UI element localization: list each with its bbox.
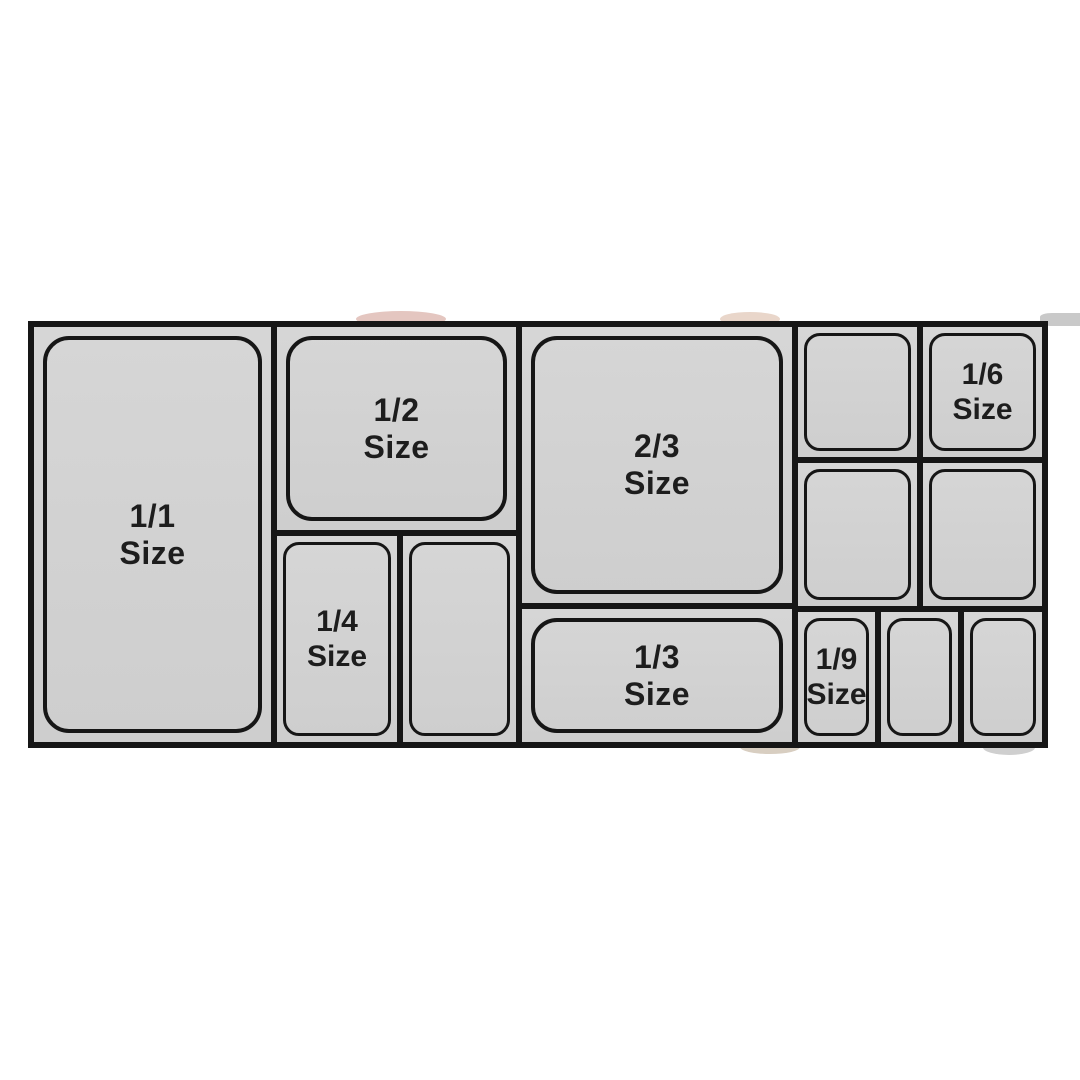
- pan-1-6: 1/6 Size: [923, 327, 1042, 457]
- pan-label: 1/4 Size: [277, 536, 397, 742]
- pan-size-chart: 1/1 Size 1/2 Size 1/4 Size: [0, 0, 1080, 1080]
- pan-label: 1/1 Size: [34, 327, 271, 742]
- pan-label-word: Size: [806, 677, 866, 712]
- row-sixth-pans-top: 1/6 Size: [798, 327, 1042, 457]
- pan-1-9-unlabeled-1: [881, 612, 958, 742]
- column-twothirds-third: 2/3 Size 1/3 Size: [522, 327, 792, 742]
- pan-label-word: Size: [624, 676, 690, 713]
- pan-1-9-unlabeled-2: [964, 612, 1042, 742]
- pan-label-word: Size: [363, 429, 429, 466]
- row-quarter-pans: 1/4 Size: [277, 536, 516, 742]
- pan-inner-outline: [970, 618, 1036, 736]
- pan-1-1: 1/1 Size: [34, 327, 271, 742]
- pan-label-fraction: 1/2: [374, 392, 420, 429]
- pan-2-3: 2/3 Size: [522, 327, 792, 603]
- pan-label: 1/9 Size: [798, 612, 875, 742]
- column-half-quarter: 1/2 Size 1/4 Size: [277, 327, 516, 742]
- pan-label-fraction: 1/3: [634, 639, 680, 676]
- pan-1-4-unlabeled: [403, 536, 516, 742]
- pan-inner-outline: [804, 333, 911, 451]
- row-sixth-pans-bottom: [798, 463, 1042, 606]
- pan-label: 1/2 Size: [277, 327, 516, 530]
- pan-1-6-unlabeled-3: [923, 463, 1042, 606]
- pan-label: 1/6 Size: [923, 327, 1042, 457]
- column-full: 1/1 Size: [34, 327, 271, 742]
- pan-label-fraction: 1/1: [130, 498, 176, 535]
- pan-label-fraction: 1/4: [316, 604, 358, 639]
- pan-inner-outline: [887, 618, 952, 736]
- pan-1-6-unlabeled-1: [798, 327, 917, 457]
- pan-inner-outline: [804, 469, 911, 600]
- pan-label-fraction: 1/9: [816, 642, 858, 677]
- pan-inner-outline: [409, 542, 510, 736]
- pan-1-2: 1/2 Size: [277, 327, 516, 530]
- pan-label-word: Size: [307, 639, 367, 674]
- pan-grid: 1/1 Size 1/2 Size 1/4 Size: [28, 321, 1048, 748]
- pan-1-6-unlabeled-2: [798, 463, 917, 606]
- pan-label: 1/3 Size: [522, 609, 792, 742]
- pan-label-fraction: 1/6: [962, 357, 1004, 392]
- pan-1-4: 1/4 Size: [277, 536, 397, 742]
- pan-label-fraction: 2/3: [634, 428, 680, 465]
- pan-label-word: Size: [952, 392, 1012, 427]
- row-ninth-pans: 1/9 Size: [798, 612, 1042, 742]
- column-sixth-ninth: 1/6 Size 1/9 Size: [798, 327, 1042, 742]
- pan-1-9: 1/9 Size: [798, 612, 875, 742]
- pan-label-word: Size: [624, 465, 690, 502]
- pan-label: 2/3 Size: [522, 327, 792, 603]
- pan-1-3: 1/3 Size: [522, 609, 792, 742]
- pan-inner-outline: [929, 469, 1036, 600]
- pan-label-word: Size: [119, 535, 185, 572]
